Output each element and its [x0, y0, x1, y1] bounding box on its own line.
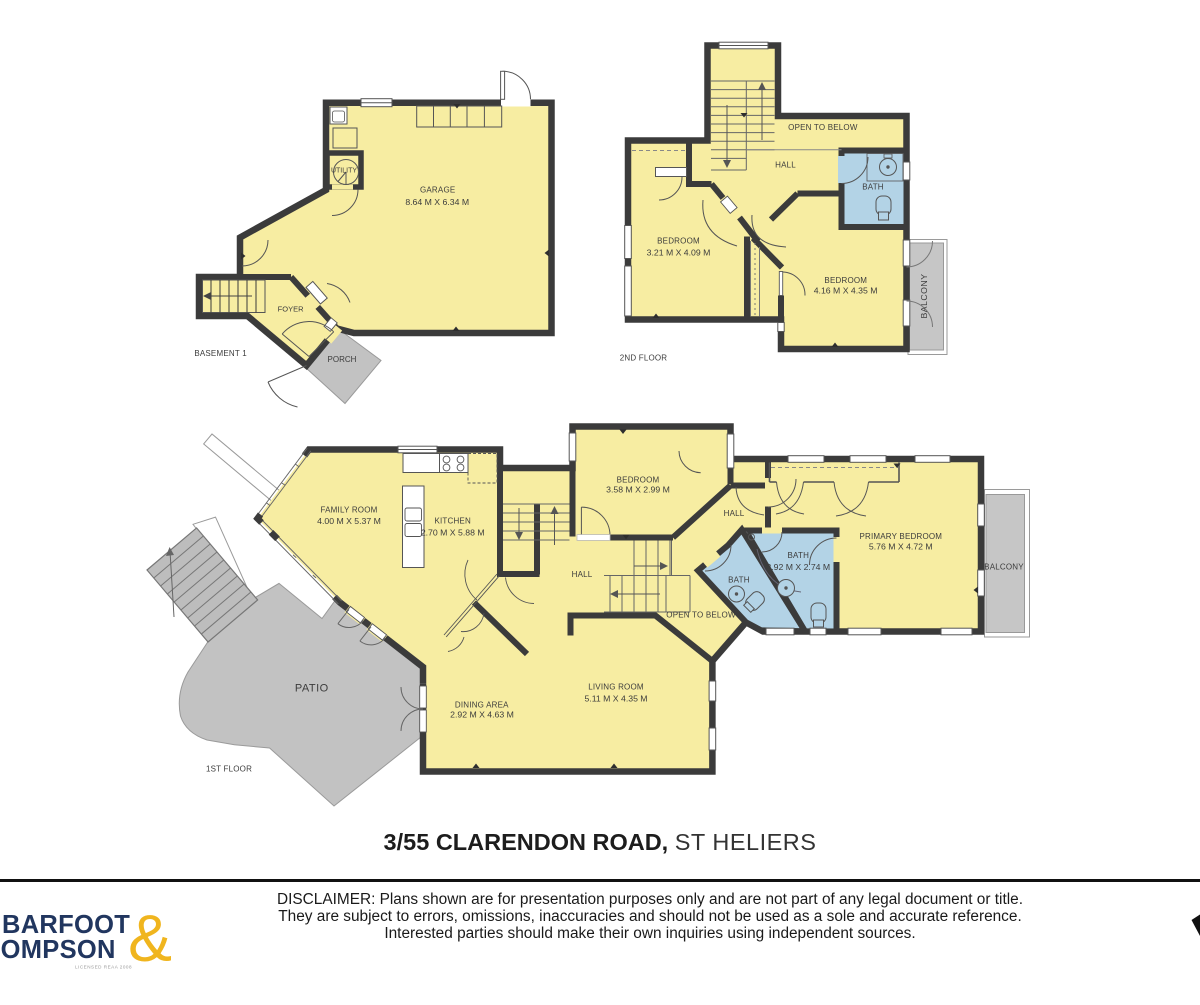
svg-text:&: &: [128, 901, 172, 975]
svg-text:HALL: HALL: [572, 570, 593, 579]
svg-text:OPEN TO BELOW: OPEN TO BELOW: [788, 123, 858, 132]
svg-text:PORCH: PORCH: [328, 355, 357, 364]
svg-text:2.92 M X 2.74 M: 2.92 M X 2.74 M: [766, 562, 830, 572]
svg-text:4.16 M X 4.35 M: 4.16 M X 4.35 M: [814, 286, 878, 296]
svg-text:FOYER: FOYER: [278, 305, 304, 314]
svg-text:BEDROOM: BEDROOM: [617, 475, 660, 484]
svg-text:BALCONY: BALCONY: [984, 563, 1024, 572]
svg-text:BEDROOM: BEDROOM: [657, 236, 700, 245]
svg-text:BALCONY: BALCONY: [919, 273, 929, 318]
svg-text:3/55 CLARENDON ROAD, ST HELIER: 3/55 CLARENDON ROAD, ST HELIERS: [384, 829, 817, 855]
svg-text:OPEN TO BELOW: OPEN TO BELOW: [666, 611, 736, 620]
svg-text:4.00 M X 5.37 M: 4.00 M X 5.37 M: [317, 516, 381, 526]
svg-text:BASEMENT 1: BASEMENT 1: [194, 349, 247, 358]
svg-text:BATH: BATH: [862, 183, 884, 192]
svg-text:3.21 M X 4.09 M: 3.21 M X 4.09 M: [647, 248, 711, 258]
svg-text:KITCHEN: KITCHEN: [434, 516, 471, 525]
svg-text:2.92 M X 4.63 M: 2.92 M X 4.63 M: [450, 710, 514, 720]
svg-text:HALL: HALL: [724, 509, 745, 518]
svg-text:HALL: HALL: [775, 161, 796, 170]
svg-text:DINING AREA: DINING AREA: [455, 700, 509, 709]
svg-text:FAMILY ROOM: FAMILY ROOM: [320, 506, 377, 515]
svg-text:They are subject to errors, om: They are subject to errors, omissions, i…: [278, 908, 1021, 925]
svg-text:PATIO: PATIO: [295, 683, 329, 695]
svg-text:UTILITY: UTILITY: [331, 168, 357, 175]
svg-text:5.76 M X 4.72 M: 5.76 M X 4.72 M: [869, 542, 933, 552]
svg-text:Interested parties should make: Interested parties should make their own…: [384, 925, 915, 942]
svg-text:5.11 M X 4.35 M: 5.11 M X 4.35 M: [584, 693, 647, 703]
svg-text:BATH: BATH: [728, 575, 750, 584]
svg-text:THOMPSON: THOMPSON: [0, 936, 116, 964]
svg-text:DISCLAIMER: Plans shown are fo: DISCLAIMER: Plans shown are for presenta…: [277, 891, 1023, 908]
svg-text:2ND FLOOR: 2ND FLOOR: [620, 354, 668, 363]
svg-text:3.58 M X 2.99 M: 3.58 M X 2.99 M: [606, 485, 670, 495]
svg-text:BATH: BATH: [788, 551, 810, 560]
svg-text:LIVING ROOM: LIVING ROOM: [588, 682, 644, 691]
svg-text:BARFOOT: BARFOOT: [2, 911, 130, 939]
svg-text:PRIMARY BEDROOM: PRIMARY BEDROOM: [859, 532, 942, 541]
svg-text:GARAGE: GARAGE: [420, 186, 455, 195]
svg-text:8.64 M X 6.34 M: 8.64 M X 6.34 M: [405, 197, 469, 207]
svg-text:LICENSED REAA 2008: LICENSED REAA 2008: [75, 965, 132, 970]
svg-text:BEDROOM: BEDROOM: [824, 276, 867, 285]
svg-text:2.70 M X 5.88 M: 2.70 M X 5.88 M: [421, 528, 485, 538]
svg-text:1ST FLOOR: 1ST FLOOR: [206, 765, 252, 774]
